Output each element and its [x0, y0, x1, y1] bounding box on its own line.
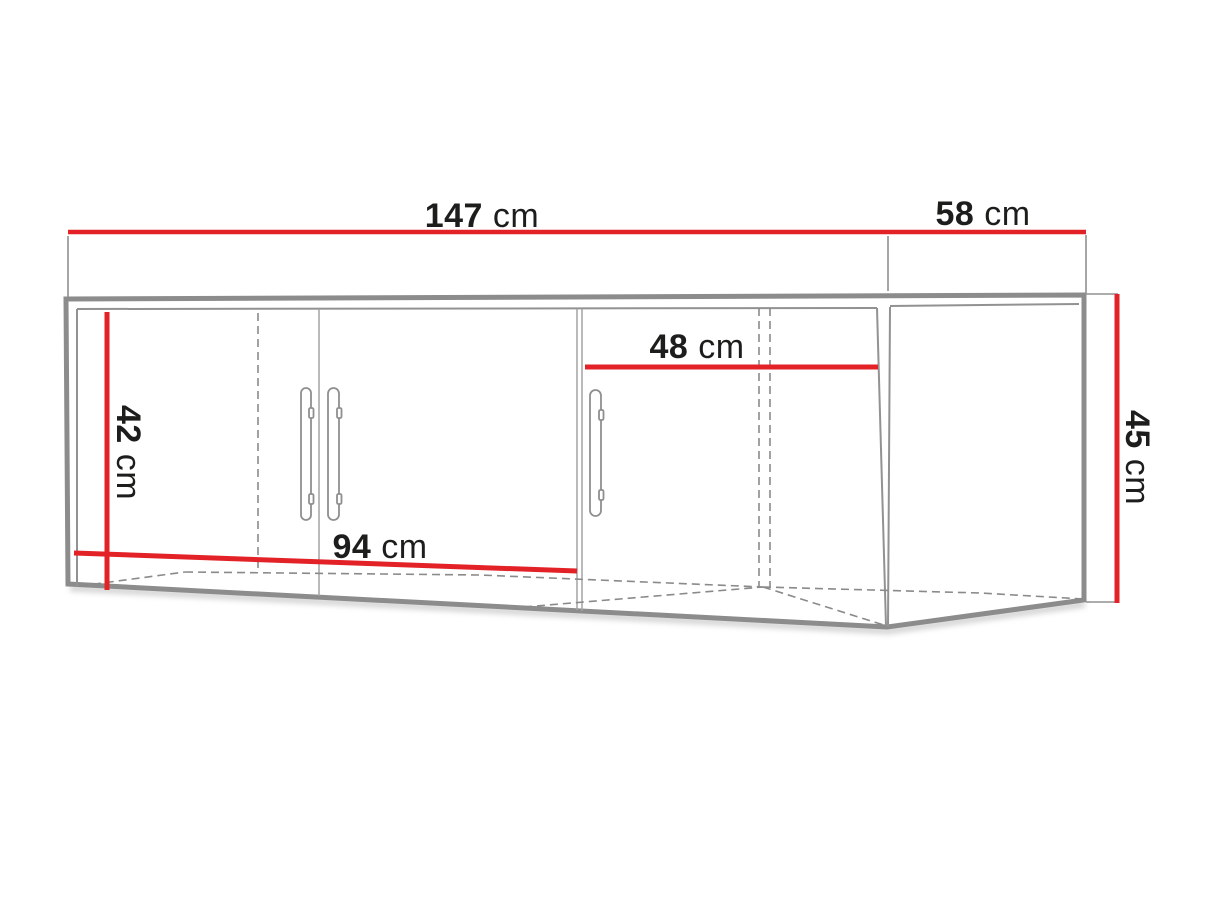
- cabinet-outline: [66, 295, 1084, 627]
- front-inner-top-edge: [77, 308, 877, 309]
- label-interior-height: 42 cm: [109, 405, 147, 500]
- label-double-door-width: 94 cm: [332, 528, 427, 566]
- label-front-width: 147 cm: [425, 197, 540, 235]
- handle-left-door: [301, 388, 314, 520]
- dimension-diagram: 147 cm 58 cm 48 cm 94 cm 42 cm 45 cm: [0, 0, 1214, 911]
- label-side-depth: 58 cm: [935, 195, 1030, 233]
- cabinet-drawing: 147 cm 58 cm 48 cm 94 cm 42 cm 45 cm: [0, 0, 1214, 911]
- label-right-door-width: 48 cm: [649, 328, 744, 366]
- label-overall-height: 45 cm: [1118, 410, 1156, 505]
- handle-right-door: [590, 390, 604, 516]
- handle-middle-door: [328, 388, 342, 520]
